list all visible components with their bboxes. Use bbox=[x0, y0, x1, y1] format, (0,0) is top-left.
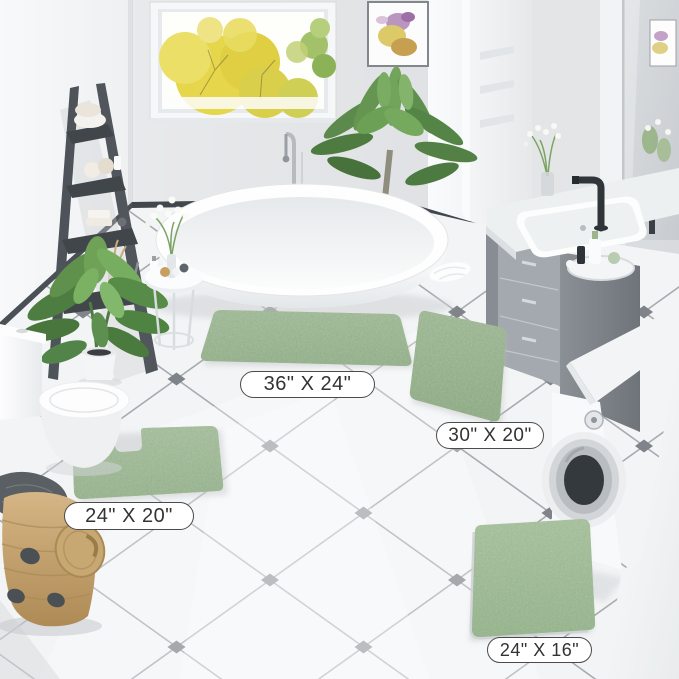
bathtub bbox=[152, 184, 452, 322]
product-photo-bathroom-scene: 36" X 24" 30" X 20" 24" X 20" 24" X 16" bbox=[0, 0, 679, 679]
wall-corner bbox=[128, 0, 133, 208]
vanity-drawers bbox=[498, 238, 560, 386]
washer-door bbox=[542, 432, 626, 528]
wall-art bbox=[368, 2, 428, 66]
window-sill bbox=[150, 118, 336, 123]
sink-drain bbox=[580, 225, 586, 231]
size-label-30x20: 30" X 20" bbox=[436, 422, 544, 449]
window bbox=[150, 2, 336, 123]
large-rug-36x24 bbox=[201, 310, 415, 368]
bathroom-illustration bbox=[0, 0, 679, 679]
small-rug-24x16 bbox=[470, 519, 595, 641]
toilet-tank bbox=[0, 332, 42, 420]
size-label-36x24: 36" X 24" bbox=[240, 371, 375, 398]
size-label-24x16: 24" X 16" bbox=[487, 637, 592, 663]
size-label-24x20: 24" X 20" bbox=[64, 502, 194, 530]
